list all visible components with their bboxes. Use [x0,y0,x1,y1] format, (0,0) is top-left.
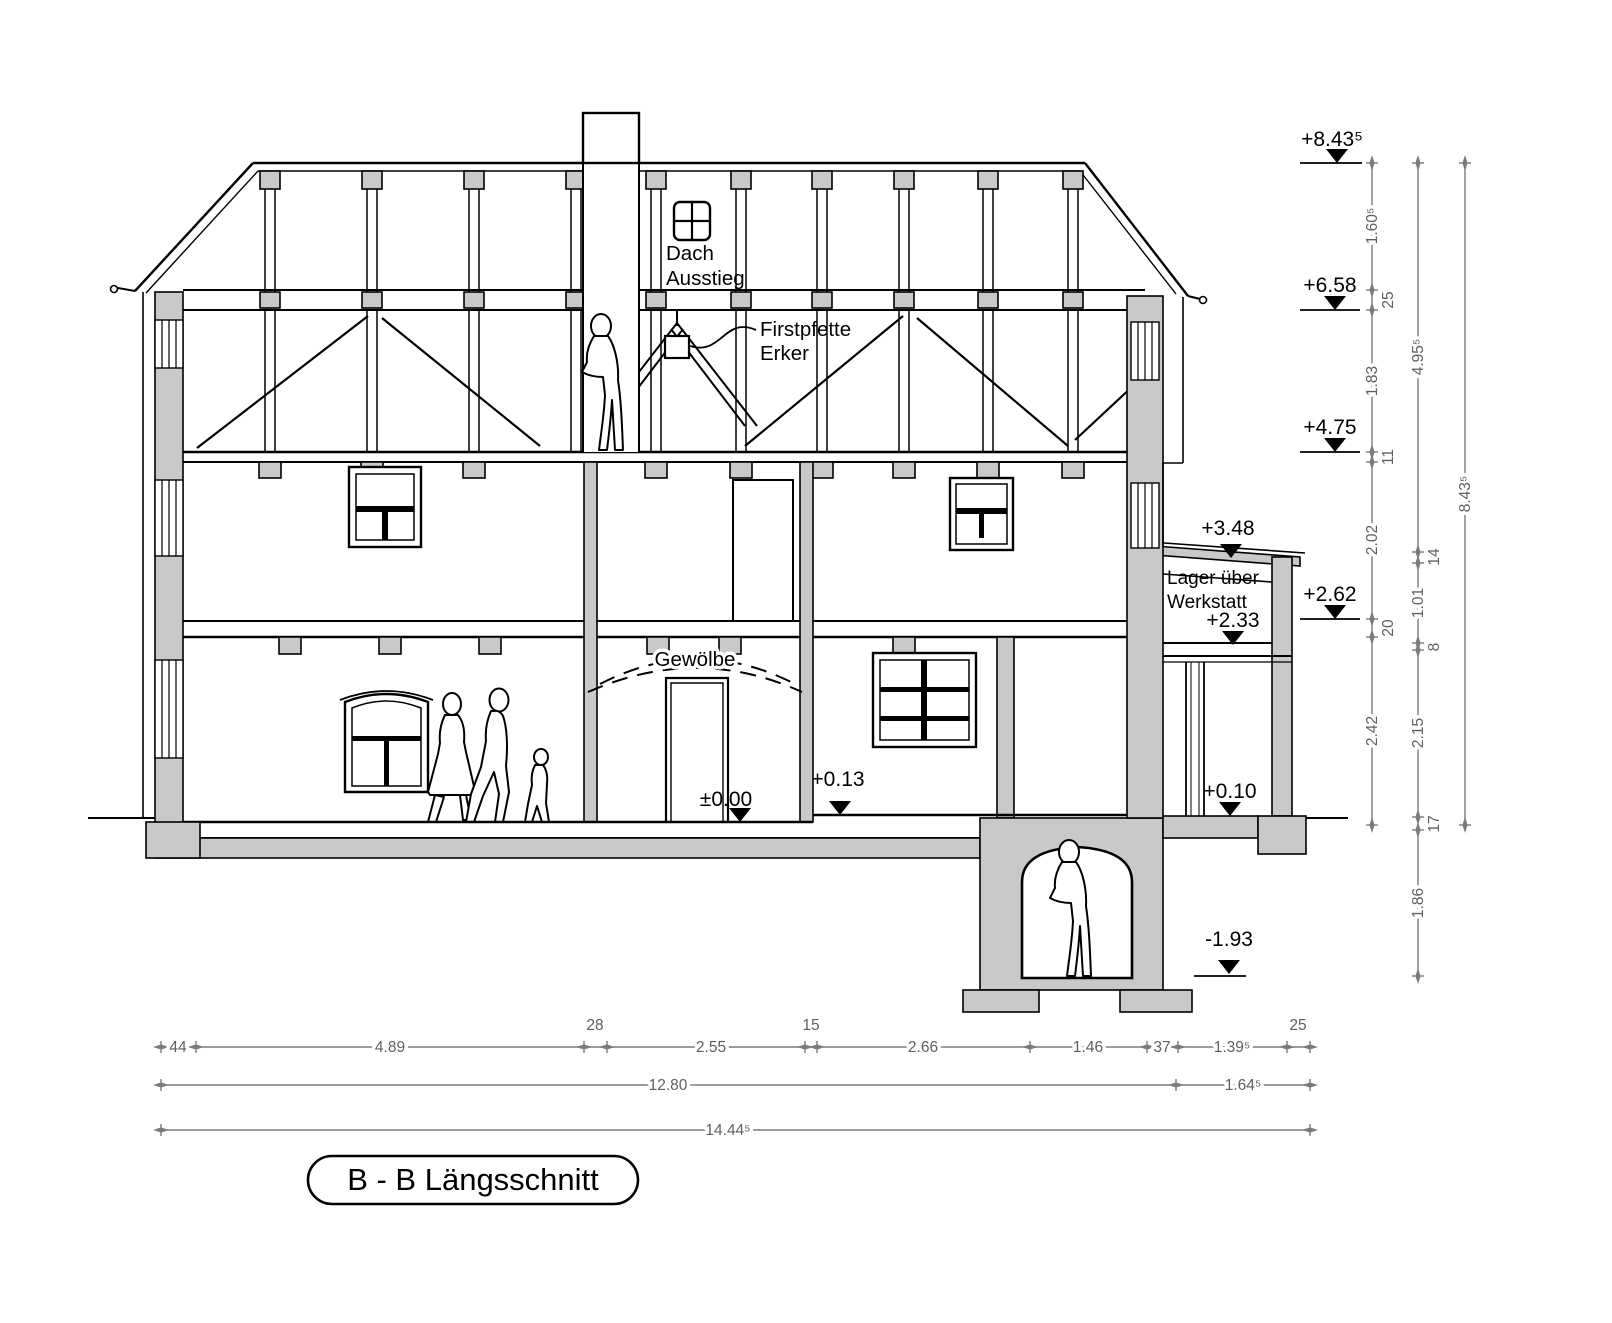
dim-value: 1.46 [1073,1039,1103,1056]
elevation-value: +0.13 [811,768,864,791]
dim-row-mid: 12.80 1.64⁵ [153,1077,1318,1094]
page-title: B - B Längsschnitt [347,1162,599,1197]
dim-col-outer: 8.43⁵ [1457,155,1474,833]
elevation-marker-ground-floor: ±0.00 [700,788,752,822]
attic-framing [197,171,1148,478]
dim-value: 44 [169,1039,187,1056]
dim-value: 14 [1426,548,1443,566]
dim-value: 28 [586,1017,603,1034]
basement [963,818,1192,1012]
dim-value: 1.83 [1364,366,1381,396]
dim-value: 11 [1380,449,1397,465]
elevation-value: +8.43⁵ [1301,128,1363,151]
dim-value: 17 [1426,815,1443,832]
left-wall [143,292,200,858]
dim-value: 8.43⁵ [1457,476,1474,513]
gutter-right-icon [1188,296,1207,304]
dim-value: 4.89 [375,1039,405,1056]
dim-value: 8 [1426,643,1443,652]
label-ausstieg: Ausstieg [666,267,745,290]
elevation-value: -1.93 [1205,928,1253,951]
label-werkstatt: Werkstatt [1167,592,1248,613]
right-wall-window-first [1131,483,1159,548]
elevation-value: ±0.00 [700,788,752,811]
family-figures [428,689,549,823]
label-firstpfette: Firstpfette [760,318,851,341]
dim-value: 12.80 [649,1077,688,1094]
elevation-value: +2.62 [1303,583,1356,606]
dim-value: 1.60⁵ [1364,208,1381,245]
first-floor-window-right [950,478,1013,550]
dim-value: 2.55 [696,1039,726,1056]
dim-value: 15 [802,1017,819,1034]
label-lager: Lager über [1167,568,1260,589]
dim-value: 2.66 [908,1039,938,1056]
first-floor [279,467,1013,654]
drawing-title: B - B Längsschnitt [308,1156,638,1204]
left-wall-window-attic [155,320,183,368]
footing-right [1120,990,1192,1012]
elevation-marker-storage-floor: +2.33 [1206,609,1259,645]
elevation-value: +0.10 [1203,780,1256,803]
label-gewoelbe: Gewölbe [655,648,736,671]
label-erker: Erker [760,342,809,365]
section-drawing: +8.43⁵ +6.58 +4.75 +2.62 +3.48 +2.33 [0,0,1612,1323]
dim-value: 2.02 [1364,525,1381,555]
first-floor-window-left [349,467,421,547]
elevation-value: +6.58 [1303,274,1356,297]
dim-value: 1.64⁵ [1225,1077,1262,1094]
elevation-marker-eaves: +6.58 [1300,274,1360,310]
dim-value: 20 [1380,619,1397,637]
man-figure [466,689,509,823]
dim-col-inner: 1.60⁵ 25 1.83 11 2.02 20 2.42 [1364,155,1397,833]
dim-row-bottom: 14.44⁵ [153,1122,1318,1139]
elevation-value: +4.75 [1303,416,1356,439]
label-dach: Dach [666,242,714,265]
dim-value: 25 [1380,291,1397,308]
dim-value: 37 [1153,1039,1170,1056]
elevation-marker-roof-ridge: +8.43⁵ [1300,128,1363,163]
child-figure [525,749,549,822]
right-wall-window-attic [1131,322,1159,380]
elevation-marker-workshop-floor: +0.10 [1203,780,1256,816]
skylight-icon [674,202,710,240]
outer-walls [143,292,1183,858]
annex-post [1272,557,1292,816]
dim-value: 1.01 [1410,588,1427,618]
left-wall-footing [146,822,200,858]
dim-value: 2.15 [1410,718,1427,748]
dim-value: 1.86 [1410,888,1427,918]
elevation-marker-first-floor: +2.62 [1300,583,1360,619]
gutter-left-icon [111,286,136,293]
elevation-marker-attic-floor: +4.75 [1300,416,1360,452]
dim-value: 2.42 [1364,716,1381,746]
annex-slab [1163,816,1258,838]
dim-value: 14.44⁵ [705,1122,750,1139]
ground-floor-window-left [340,691,433,792]
dim-value: 4.95⁵ [1410,339,1427,376]
annex-footing [1258,816,1306,854]
elevation-marker-ground-outside: +0.13 [811,768,864,815]
left-wall-window-first [155,480,183,556]
elevation-marker-basement-floor: -1.93 [1194,928,1253,976]
dim-value: 25 [1289,1017,1306,1034]
ground-floor-window-right [873,653,976,747]
footing-left [963,990,1039,1012]
firstpfette-square [665,336,689,358]
left-wall-window-ground [155,660,183,758]
first-floor-door [733,480,793,621]
dim-col-middle: 4.95⁵ 14 1.01 8 2.15 17 1.86 [1410,155,1443,984]
elevation-value: +3.48 [1201,517,1254,540]
dim-row-top: 44 4.89 28 2.55 15 2.66 1.46 37 1.39⁵ 25 [153,1017,1318,1056]
drawing-sheet: +8.43⁵ +6.58 +4.75 +2.62 +3.48 +2.33 [0,0,1612,1323]
dim-value: 1.39⁵ [1214,1039,1251,1056]
